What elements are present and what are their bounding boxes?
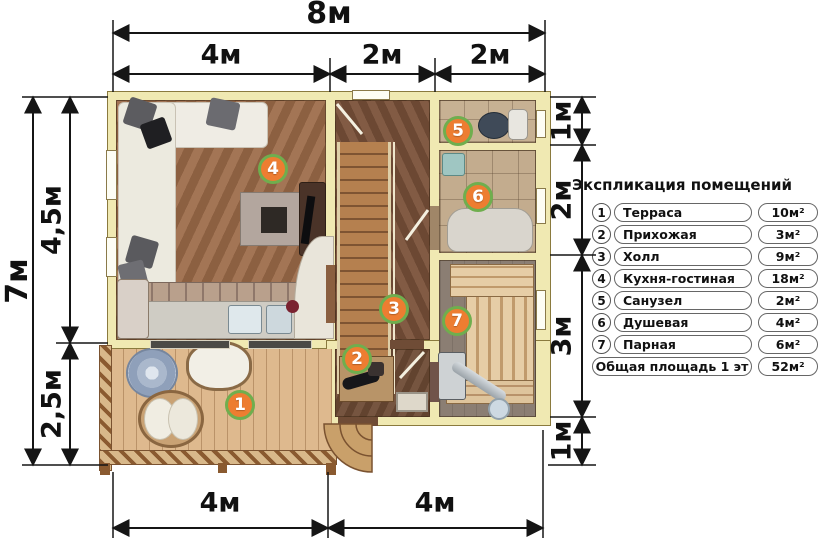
dimension-lines bbox=[0, 0, 825, 550]
badge-hall: 3 bbox=[379, 294, 409, 324]
badge-kitchen-living: 4 bbox=[258, 154, 288, 184]
badge-terrace: 1 bbox=[225, 390, 255, 420]
floor-plan-page: 1 2 3 4 5 6 7 8м 4м 2м 2м 7м 4,5м 2,5м 1… bbox=[0, 0, 825, 550]
badge-wc: 5 bbox=[443, 116, 473, 146]
badge-shower: 6 bbox=[463, 182, 493, 212]
badge-entry: 2 bbox=[342, 344, 372, 374]
badge-sauna: 7 bbox=[442, 306, 472, 336]
